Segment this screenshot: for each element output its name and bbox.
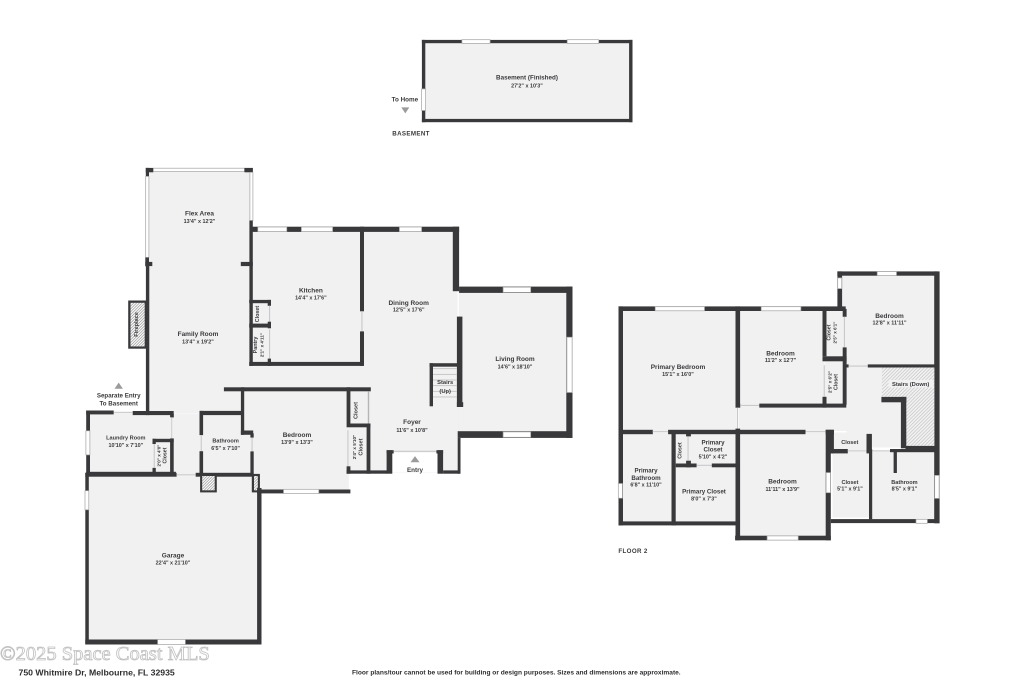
svg-text:11'6" x 10'8": 11'6" x 10'8" bbox=[396, 428, 428, 434]
svg-text:Closet: Closet bbox=[834, 374, 840, 390]
svg-text:Bedroom: Bedroom bbox=[768, 479, 797, 486]
svg-text:Pantry: Pantry bbox=[253, 337, 259, 354]
svg-text:Kitchen: Kitchen bbox=[299, 288, 323, 295]
svg-text:Basement (Finished): Basement (Finished) bbox=[496, 75, 558, 82]
svg-text:Laundry Room: Laundry Room bbox=[106, 436, 145, 442]
svg-text:8'5" x 9'1": 8'5" x 9'1" bbox=[892, 487, 918, 493]
svg-text:Closet: Closet bbox=[704, 447, 723, 454]
svg-text:750 Whitmire Dr, Melbourne, FL: 750 Whitmire Dr, Melbourne, FL 32935 bbox=[19, 668, 175, 678]
svg-text:2'1" x 4'11": 2'1" x 4'11" bbox=[259, 333, 264, 357]
svg-text:2'4" x 5'10": 2'4" x 5'10" bbox=[352, 435, 357, 459]
svg-text:Closet: Closet bbox=[359, 438, 365, 455]
svg-text:13'4" x 12'2": 13'4" x 12'2" bbox=[184, 219, 216, 225]
svg-text:Floor plans/tour cannot be use: Floor plans/tour cannot be used for buil… bbox=[352, 670, 681, 677]
svg-text:Bedroom: Bedroom bbox=[875, 313, 904, 320]
svg-text:FLOOR 2: FLOOR 2 bbox=[618, 548, 647, 555]
svg-text:13'9" x 13'3": 13'9" x 13'3" bbox=[281, 440, 313, 446]
svg-text:11'11" x 13'9": 11'11" x 13'9" bbox=[765, 487, 800, 493]
svg-text:Primary: Primary bbox=[634, 468, 658, 475]
svg-text:Entry: Entry bbox=[407, 467, 424, 474]
svg-text:2'5" x 6'2": 2'5" x 6'2" bbox=[827, 371, 832, 393]
svg-text:Fireplace: Fireplace bbox=[134, 312, 140, 337]
svg-text:10'10" x 7'10": 10'10" x 7'10" bbox=[108, 443, 143, 449]
svg-text:27'2" x 10'3": 27'2" x 10'3" bbox=[511, 84, 543, 90]
svg-text:15'1" x 16'0": 15'1" x 16'0" bbox=[662, 372, 694, 378]
svg-text:Primary Bedroom: Primary Bedroom bbox=[651, 364, 706, 371]
svg-text:5'1" x 9'1": 5'1" x 9'1" bbox=[837, 487, 863, 493]
svg-text:Bedroom: Bedroom bbox=[283, 432, 312, 439]
svg-text:Living Room: Living Room bbox=[495, 356, 535, 363]
svg-text:Bathroom: Bathroom bbox=[212, 439, 238, 445]
svg-text:22'4" x 21'10": 22'4" x 21'10" bbox=[156, 560, 191, 566]
svg-text:Dining Room: Dining Room bbox=[388, 300, 429, 307]
svg-text:12'5" x 17'6": 12'5" x 17'6" bbox=[393, 308, 425, 314]
svg-text:Closet: Closet bbox=[827, 324, 833, 340]
svg-text:13'4" x 19'2": 13'4" x 19'2" bbox=[182, 339, 214, 345]
svg-text:8'0" x 7'3": 8'0" x 7'3" bbox=[691, 497, 717, 503]
svg-text:14'4" x 17'6": 14'4" x 17'6" bbox=[295, 295, 327, 301]
svg-text:Primary: Primary bbox=[701, 439, 725, 446]
svg-text:Closet: Closet bbox=[354, 402, 360, 419]
svg-text:Primary Closet: Primary Closet bbox=[682, 489, 726, 496]
svg-text:12'8" x 11'11": 12'8" x 11'11" bbox=[872, 320, 907, 326]
svg-text:To Basement: To Basement bbox=[99, 401, 137, 408]
svg-text:Separate Entry: Separate Entry bbox=[97, 393, 141, 400]
svg-text:5'10" x 4'2": 5'10" x 4'2" bbox=[699, 454, 728, 460]
svg-text:(Up): (Up) bbox=[439, 389, 451, 395]
svg-text:Foyer: Foyer bbox=[403, 419, 421, 426]
svg-text:Bathroom: Bathroom bbox=[631, 475, 661, 482]
svg-text:©2025 Space Coast MLS: ©2025 Space Coast MLS bbox=[0, 643, 210, 665]
svg-text:To Home: To Home bbox=[392, 97, 419, 104]
svg-text:Garage: Garage bbox=[162, 552, 185, 559]
svg-text:2'0" x 4'0": 2'0" x 4'0" bbox=[157, 445, 162, 467]
svg-text:Stairs: Stairs bbox=[437, 380, 453, 386]
svg-text:Closet: Closet bbox=[255, 306, 261, 323]
svg-text:Closet: Closet bbox=[163, 447, 169, 463]
svg-text:Closet: Closet bbox=[841, 440, 858, 446]
svg-text:Closet: Closet bbox=[841, 480, 858, 486]
svg-text:BASEMENT: BASEMENT bbox=[392, 130, 430, 137]
svg-text:Closet: Closet bbox=[678, 442, 684, 459]
svg-text:Flex Area: Flex Area bbox=[185, 211, 214, 218]
svg-text:Bedroom: Bedroom bbox=[766, 351, 795, 358]
svg-text:11'2" x 12'7": 11'2" x 12'7" bbox=[765, 358, 797, 364]
svg-text:14'6" x 18'10": 14'6" x 18'10" bbox=[498, 364, 533, 370]
svg-text:6'5" x 7'10": 6'5" x 7'10" bbox=[211, 446, 240, 452]
svg-text:2'5" x 6'1": 2'5" x 6'1" bbox=[833, 322, 838, 344]
svg-text:Bathroom: Bathroom bbox=[891, 480, 917, 486]
svg-text:Family Room: Family Room bbox=[178, 331, 219, 338]
svg-text:6'8" x 11'10": 6'8" x 11'10" bbox=[630, 483, 662, 489]
svg-text:Stairs (Down): Stairs (Down) bbox=[892, 382, 929, 388]
